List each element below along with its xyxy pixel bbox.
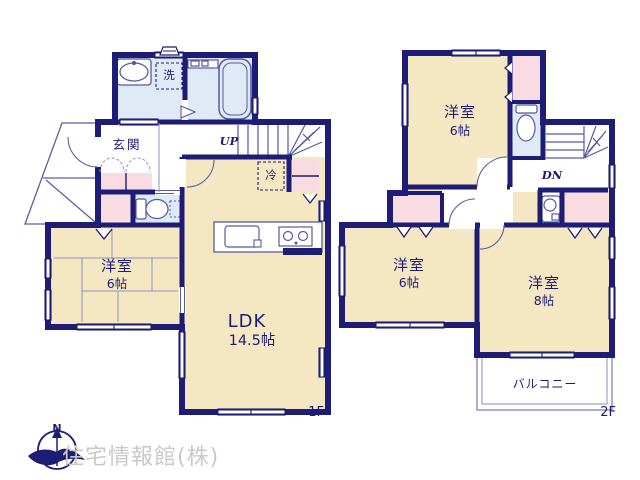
bath-counter-icon: [188, 60, 218, 68]
bedroom-2f-left-size: 6帖: [379, 276, 439, 290]
entrance-porch: [25, 123, 98, 224]
toilet-icon-2f: [516, 105, 537, 141]
compass-north-label: N: [49, 423, 65, 435]
laundry-label: 洗: [158, 69, 180, 82]
ldk-name: LDK: [207, 312, 287, 332]
balcony-label: バルコニー: [495, 378, 595, 391]
bedroom-1f-name: 洋室: [87, 258, 147, 275]
entrance-label: 玄関: [101, 138, 153, 152]
stairs-up-label: UP: [217, 135, 241, 148]
fridge-label: 冷: [260, 169, 282, 182]
bedroom-2f-left-name: 洋室: [379, 257, 439, 274]
floorplan: 洗 玄関 UP 冷 洋室 6帖 LDK 14.5帖 1F 洋室 6帖 DN 洋室…: [0, 0, 640, 480]
closet-2f-left: [390, 193, 442, 225]
floor1-plan: [25, 47, 328, 415]
bedroom-2f-top-name: 洋室: [430, 104, 490, 121]
washbasin-icon-2f: [542, 196, 560, 222]
bedroom-2f-right-name: 洋室: [514, 275, 574, 292]
floor2-label: 2F: [590, 406, 616, 420]
bedroom-1f-size: 6帖: [87, 277, 147, 291]
company-watermark: 住宅情報館(株): [62, 446, 282, 470]
wash-sink-icon: [117, 59, 151, 85]
bedroom-2f-top-size: 6帖: [430, 124, 490, 138]
closet-2f-top: [512, 56, 541, 102]
floor1-label: 1F: [298, 406, 324, 420]
hall-closet: [98, 192, 133, 225]
kitchen-counter: [214, 222, 322, 252]
bedroom-2f-right-size: 8帖: [514, 294, 574, 308]
ldk-size: 14.5帖: [207, 334, 297, 350]
stairs-down-label: DN: [539, 169, 565, 182]
closet-2f-right: [562, 190, 608, 225]
